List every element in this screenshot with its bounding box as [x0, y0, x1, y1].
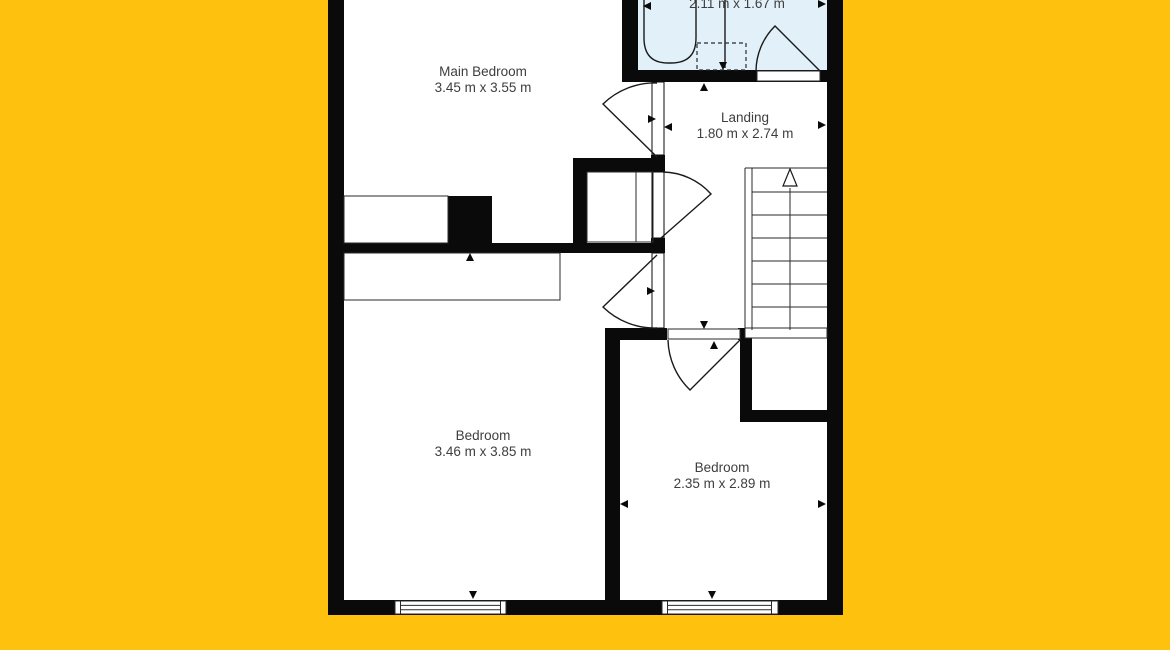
bedroom-divider-wall: [605, 328, 620, 600]
cupboard-door-opening: [652, 172, 664, 238]
window-bedroom-left: [395, 601, 506, 614]
bathroom-door-threshold: [757, 71, 820, 81]
bedroom-right-door-threshold: [668, 329, 740, 339]
cupboard-wall-west: [573, 158, 587, 253]
understairs-wall-horizontal: [740, 410, 827, 422]
understairs-wall-vertical: [740, 340, 752, 422]
floorplan-page: Main Bedroom 3.45 m x 3.55 m 2.11 m x 1.…: [0, 0, 1170, 650]
bathroom-wall-west: [622, 0, 638, 82]
floorplan-drawing: [0, 0, 1170, 650]
main-bedroom-wall-south: [344, 243, 665, 253]
bathroom-floor: [638, 0, 827, 70]
bedroom-right-wall-north: [605, 328, 667, 340]
outer-wall-right: [827, 0, 843, 615]
stairs-bottom-threshold: [745, 328, 827, 338]
chimney-breast: [448, 196, 492, 243]
outer-wall-left: [328, 0, 344, 615]
window-bedroom-right: [662, 601, 778, 614]
